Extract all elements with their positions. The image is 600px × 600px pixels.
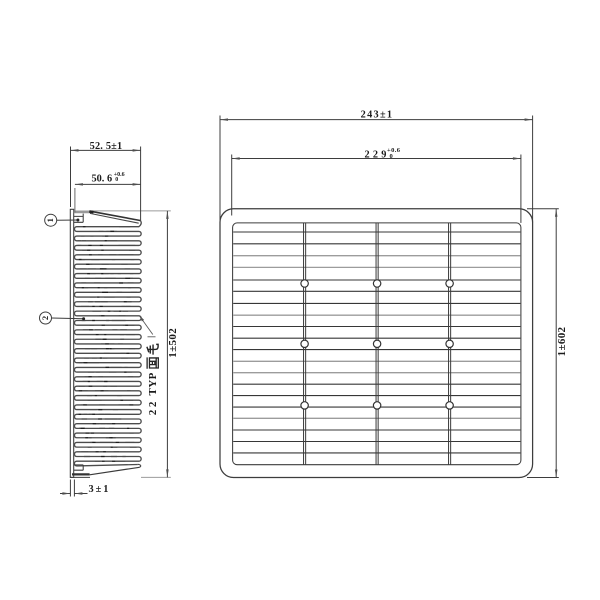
svg-text:22: 22 [147, 399, 159, 415]
svg-text:50. 6: 50. 6 [92, 173, 113, 184]
svg-text:52. 5±1: 52. 5±1 [90, 141, 123, 152]
svg-text:243±1: 243±1 [361, 109, 394, 120]
svg-text:3±1: 3±1 [89, 484, 111, 495]
svg-text:0: 0 [115, 177, 118, 183]
svg-text:229: 229 [365, 150, 390, 161]
svg-text:2: 2 [40, 316, 50, 320]
svg-text:1: 1 [45, 218, 55, 222]
svg-text:TYP: TYP [147, 372, 159, 395]
svg-text:1±502: 1±502 [167, 328, 179, 358]
svg-text:1±602: 1±602 [556, 326, 568, 356]
svg-text:0: 0 [390, 153, 393, 160]
